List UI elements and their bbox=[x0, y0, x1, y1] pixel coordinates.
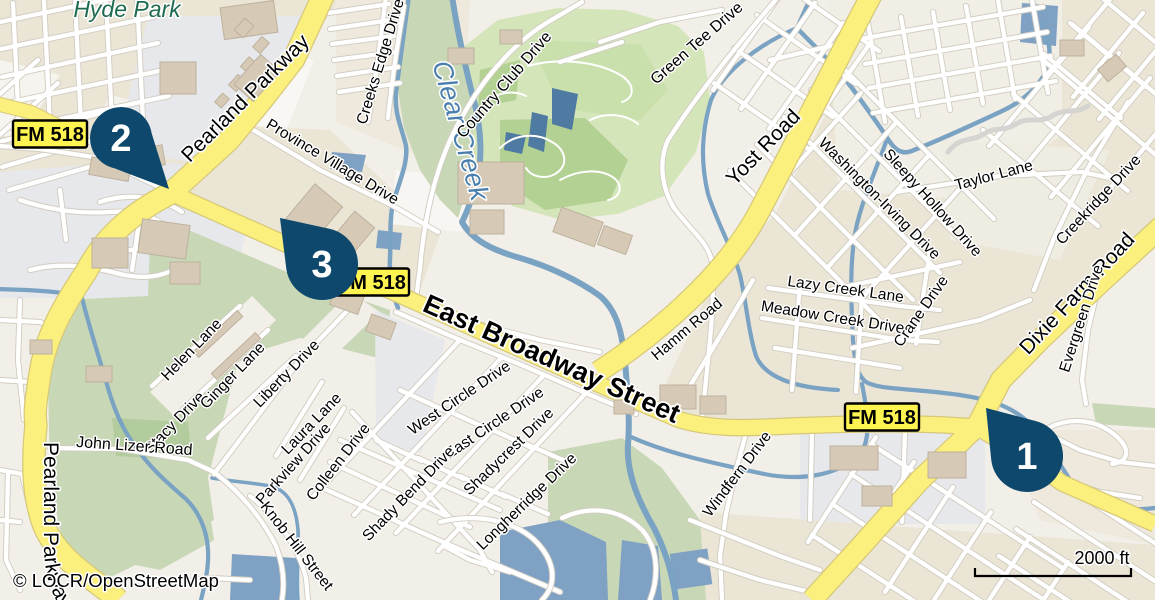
svg-text:2: 2 bbox=[110, 118, 131, 160]
svg-text:FM 518: FM 518 bbox=[16, 124, 84, 146]
svg-text:© LOCR/OpenStreetMap: © LOCR/OpenStreetMap bbox=[13, 570, 219, 591]
svg-text:1: 1 bbox=[1016, 436, 1037, 478]
svg-text:3: 3 bbox=[311, 244, 332, 286]
svg-text:2000 ft: 2000 ft bbox=[1074, 548, 1129, 568]
svg-text:Hyde Park: Hyde Park bbox=[73, 0, 182, 22]
svg-text:FM 518: FM 518 bbox=[848, 407, 916, 429]
